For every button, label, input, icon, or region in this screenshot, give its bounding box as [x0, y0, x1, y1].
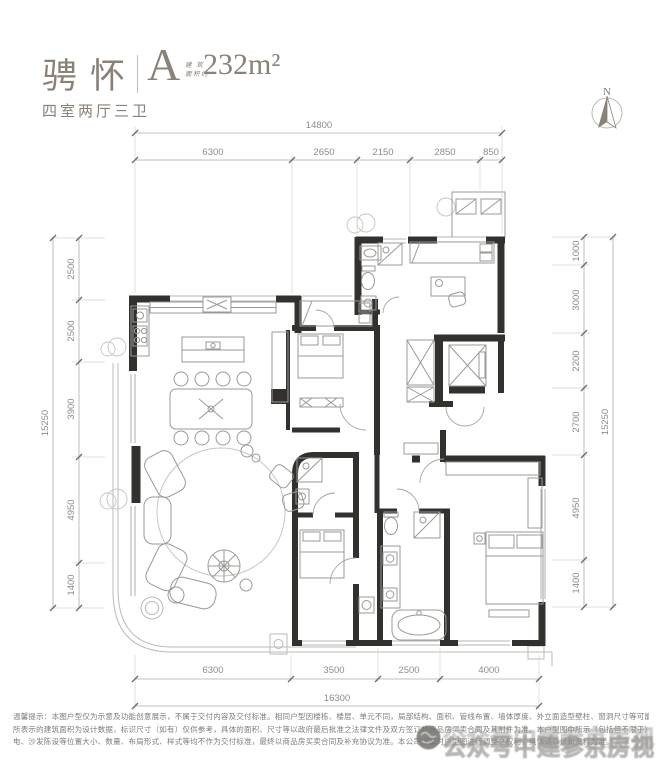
floorplan-drawing: N — [0, 0, 660, 763]
compass-needle-dark — [598, 96, 607, 128]
wardrobe — [446, 462, 540, 475]
dim-top-seg-0: 6300 — [202, 147, 223, 158]
dim-top-seg-2: 2150 — [372, 147, 393, 158]
dim-top-seg-4: 850 — [483, 147, 499, 158]
washer — [359, 597, 374, 613]
toilet — [362, 273, 375, 290]
compass-needle-light — [607, 96, 616, 128]
dim-right-seg-2: 2200 — [571, 350, 582, 371]
kitchen — [131, 297, 276, 362]
terrace-outline — [113, 363, 552, 666]
master-bathroom — [381, 512, 446, 640]
dim-right-seg-3: 2700 — [571, 411, 582, 432]
dim-bottom-seg-0: 6300 — [202, 665, 223, 676]
compass: N — [592, 86, 622, 128]
equipment-platform — [452, 192, 505, 237]
dim-right-seg-1: 3000 — [571, 289, 582, 310]
dim-bottom-seg-2: 2500 — [398, 665, 419, 676]
sofa — [141, 448, 188, 501]
dining-table — [170, 372, 252, 445]
watermark-logo-icon — [416, 725, 441, 750]
dim-bottom-seg-3: 4000 — [478, 665, 499, 676]
living-room — [141, 445, 305, 611]
dim-top-total: 14800 — [306, 120, 332, 131]
floorplan-page: 骋怀 A 建 筑 面积约 232m² 四室两厅三卫 N — [0, 0, 660, 763]
dim-left-seg-0: 2500 — [66, 258, 77, 279]
dim-right-seg-0: 1000 — [571, 240, 582, 261]
watermark: 公众号中建参京房视 公众号中建参京房视 — [412, 719, 660, 763]
bedroom-4 — [296, 458, 374, 613]
dim-left-seg-2: 3900 — [66, 398, 77, 419]
dim-left-seg-3: 4950 — [66, 499, 77, 520]
windows — [131, 237, 545, 645]
dim-left-total: 15250 — [40, 410, 51, 436]
dim-left-seg-1: 2500 — [66, 320, 77, 341]
armchair — [268, 463, 296, 490]
dim-bottom-total: 16300 — [324, 693, 350, 704]
bed — [300, 530, 344, 578]
desk — [431, 277, 465, 296]
dim-right-total: 15250 — [600, 409, 611, 435]
round-rug — [157, 448, 285, 576]
dim-left-seg-4: 1400 — [66, 574, 77, 595]
study-room — [410, 242, 494, 308]
dim-bottom-seg-1: 3500 — [323, 665, 344, 676]
toilet — [385, 518, 398, 535]
dim-top-seg-3: 2850 — [434, 147, 455, 158]
dim-right-seg-5: 1400 — [571, 572, 582, 593]
foyer-closet — [404, 443, 438, 454]
bathroom-2 — [360, 243, 402, 310]
dim-top-seg-1: 2650 — [313, 147, 334, 158]
walls-layer — [129, 237, 545, 646]
dim-right-seg-4: 4950 — [571, 497, 582, 518]
master-bedroom — [446, 462, 543, 617]
dimension-chains: 14800 6300 2650 2150 2850 850 6300 3500 … — [40, 120, 616, 709]
watermark-text: 公众号中建参京房视 — [443, 728, 655, 762]
